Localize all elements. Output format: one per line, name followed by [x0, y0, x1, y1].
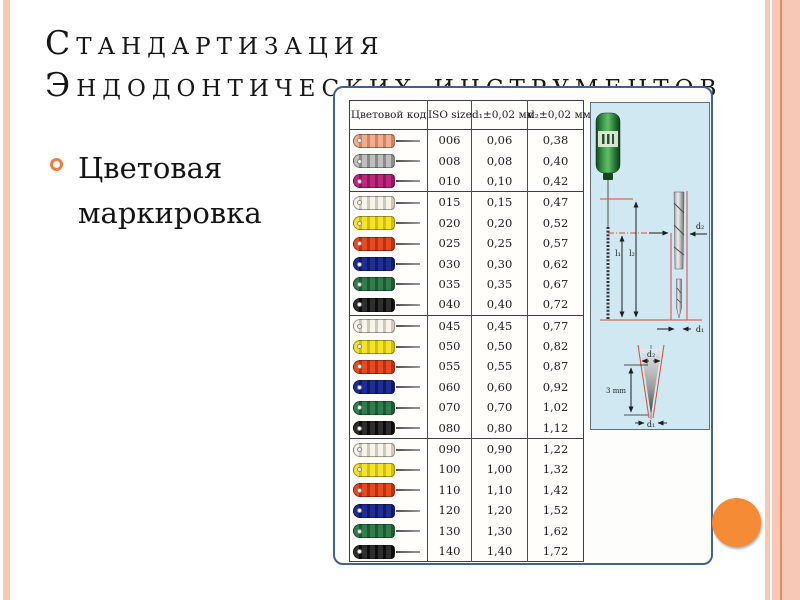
- d1-cell: 1,10: [472, 480, 528, 500]
- right-edge-stripe-thin: [765, 0, 770, 600]
- d1-cell: 0,70: [472, 397, 528, 417]
- file-handle-icon: [353, 216, 395, 230]
- iso-size-cell: 050: [428, 336, 472, 356]
- handle-eye-icon: [357, 344, 362, 349]
- color-code-cell: [350, 397, 428, 417]
- color-code-cell: [350, 336, 428, 356]
- file-shaft-icon: [396, 202, 420, 204]
- file-shaft-icon: [396, 140, 420, 142]
- table-row: 0150,150,47: [350, 192, 584, 213]
- file-handle-icon: [353, 319, 395, 333]
- d1-cell: 1,00: [472, 459, 528, 479]
- handle-eye-icon: [357, 447, 362, 452]
- file-shaft-icon: [396, 346, 420, 348]
- d2-cell: 1,12: [528, 417, 584, 438]
- table-row: 1101,101,42: [350, 480, 584, 500]
- handle-eye-icon: [357, 282, 362, 287]
- file-shaft-icon: [396, 366, 420, 368]
- cone-3mm-label: 3 mm: [606, 387, 626, 395]
- iso-size-cell: 110: [428, 480, 472, 500]
- iso-table: Цветовой код ISO size d₁±0,02 мм d₂±0,02…: [349, 100, 584, 562]
- magnified-file-blade: [674, 192, 684, 269]
- iso-size-cell: 080: [428, 417, 472, 438]
- handle-eye-icon: [357, 364, 362, 369]
- color-code-cell: [350, 294, 428, 315]
- file-handle-icon: [353, 134, 395, 148]
- d2-cell: 1,62: [528, 520, 584, 540]
- table-group: 0150,150,470200,200,520250,250,570300,30…: [350, 192, 584, 315]
- iso-size-cell: 090: [428, 438, 472, 459]
- title-line-1: Стандартизация: [45, 22, 722, 64]
- d2-cell: 1,32: [528, 459, 584, 479]
- file-handle-icon: [353, 237, 395, 251]
- table-row: 0450,450,77: [350, 315, 584, 336]
- d1-cell: 0,55: [472, 356, 528, 376]
- iso-size-cell: 070: [428, 397, 472, 417]
- file-handle-icon: [353, 545, 395, 559]
- list-bullet-icon: [50, 158, 63, 171]
- color-code-cell: [350, 500, 428, 520]
- file-handle-icon: [353, 483, 395, 497]
- file-handle-icon: [353, 380, 395, 394]
- d1-cell: 0,30: [472, 253, 528, 273]
- d1-cell: 0,35: [472, 274, 528, 294]
- d2-label: d₂: [696, 222, 704, 231]
- d2-cell: 0,82: [528, 336, 584, 356]
- file-shaft-icon: [396, 180, 420, 182]
- handle-eye-icon: [357, 241, 362, 246]
- header-iso-size: ISO size: [428, 101, 472, 130]
- d2-cell: 0,72: [528, 294, 584, 315]
- d1-label: d₁: [696, 325, 704, 334]
- right-edge-stripe-band: [772, 0, 800, 600]
- bullet-label: Цветовая маркировка: [78, 146, 313, 236]
- instrument-diagram: l₁ l₂ d₂ d₁: [591, 103, 709, 429]
- file-shaft-icon: [396, 530, 420, 532]
- iso-table-header: Цветовой код ISO size d₁±0,02 мм d₂±0,02…: [350, 101, 584, 130]
- file-shaft-icon: [396, 304, 420, 306]
- d2-cell: 1,42: [528, 480, 584, 500]
- table-row: 0400,400,72: [350, 294, 584, 315]
- d2-cell: 1,72: [528, 541, 584, 562]
- handle-eye-icon: [357, 179, 362, 184]
- table-row: 0500,500,82: [350, 336, 584, 356]
- d1-cell: 1,20: [472, 500, 528, 520]
- d2-cell: 0,67: [528, 274, 584, 294]
- iso-size-cell: 010: [428, 171, 472, 192]
- d1-cell: 0,06: [472, 130, 528, 151]
- color-code-cell: [350, 253, 428, 273]
- table-row: 0700,701,02: [350, 397, 584, 417]
- table-row: 0550,550,87: [350, 356, 584, 376]
- color-code-cell: [350, 417, 428, 438]
- handle-eye-icon: [357, 324, 362, 329]
- table-group: 0900,901,221001,001,321101,101,421201,20…: [350, 438, 584, 561]
- file-shaft-icon: [396, 160, 420, 162]
- file-handle-icon: [353, 421, 395, 435]
- file-shaft-icon: [396, 263, 420, 265]
- table-row: 0080,080,40: [350, 150, 584, 170]
- file-handle-icon: [353, 524, 395, 538]
- left-edge-stripe: [3, 0, 10, 600]
- green-handle-icon: [596, 113, 620, 180]
- iso-size-cell: 045: [428, 315, 472, 336]
- color-code-cell: [350, 541, 428, 562]
- file-shaft-icon: [396, 427, 420, 429]
- d1-cell: 0,40: [472, 294, 528, 315]
- file-handle-icon: [353, 463, 395, 477]
- d2-cell: 0,40: [528, 150, 584, 170]
- iso-size-cell: 055: [428, 356, 472, 376]
- header-color-code: Цветовой код: [350, 101, 428, 130]
- d2-cell: 1,52: [528, 500, 584, 520]
- color-code-cell: [350, 130, 428, 151]
- file-shaft-icon: [396, 283, 420, 285]
- handle-eye-icon: [357, 302, 362, 307]
- cone-d1-label: d₁: [647, 420, 655, 429]
- color-code-cell: [350, 520, 428, 540]
- file-shaft-icon: [396, 243, 420, 245]
- iso-size-cell: 030: [428, 253, 472, 273]
- right-edge-stripe-line: [780, 0, 782, 600]
- file-shaft-icon: [396, 469, 420, 471]
- file-handle-icon: [353, 298, 395, 312]
- file-handle-icon: [353, 196, 395, 210]
- file-shaft-icon: [396, 449, 420, 451]
- file-handle-icon: [353, 257, 395, 271]
- color-code-cell: [350, 171, 428, 192]
- iso-size-cell: 130: [428, 520, 472, 540]
- dimension-diagram-box: l₁ l₂ d₂ d₁: [590, 102, 710, 430]
- color-code-cell: [350, 192, 428, 213]
- file-handle-icon: [353, 277, 395, 291]
- color-code-cell: [350, 315, 428, 336]
- table-row: 0060,060,38: [350, 130, 584, 151]
- d1-cell: 0,80: [472, 417, 528, 438]
- iso-size-cell: 120: [428, 500, 472, 520]
- file-handle-icon: [353, 401, 395, 415]
- table-row: 0900,901,22: [350, 438, 584, 459]
- d1-cell: 0,20: [472, 213, 528, 233]
- iso-size-cell: 015: [428, 192, 472, 213]
- table-row: 1201,201,52: [350, 500, 584, 520]
- file-shaft-icon: [396, 222, 420, 224]
- iso-size-cell: 006: [428, 130, 472, 151]
- file-shaft-icon: [396, 407, 420, 409]
- iso-size-cell: 040: [428, 294, 472, 315]
- iso-size-cell: 020: [428, 213, 472, 233]
- l2-label: l₂: [629, 249, 635, 258]
- d1-cell: 0,60: [472, 377, 528, 397]
- table-row: 0350,350,67: [350, 274, 584, 294]
- handle-eye-icon: [357, 262, 362, 267]
- header-d2: d₂±0,02 мм: [528, 101, 584, 130]
- d1-cell: 0,45: [472, 315, 528, 336]
- handle-eye-icon: [357, 385, 362, 390]
- figure-panel: Цветовой код ISO size d₁±0,02 мм d₂±0,02…: [333, 86, 713, 565]
- d2-cell: 0,62: [528, 253, 584, 273]
- l1-label: l₁: [615, 249, 621, 258]
- d2-cell: 1,02: [528, 397, 584, 417]
- file-shaft-icon: [396, 325, 420, 327]
- table-row: 0800,801,12: [350, 417, 584, 438]
- d2-cell: 0,52: [528, 213, 584, 233]
- table-group: 0450,450,770500,500,820550,550,870600,60…: [350, 315, 584, 438]
- file-shaft-icon: [396, 489, 420, 491]
- iso-size-cell: 035: [428, 274, 472, 294]
- table-row: 1301,301,62: [350, 520, 584, 540]
- d2-cell: 0,87: [528, 356, 584, 376]
- color-code-cell: [350, 459, 428, 479]
- table-group: 0060,060,380080,080,400100,100,42: [350, 130, 584, 192]
- handle-eye-icon: [357, 138, 362, 143]
- color-code-cell: [350, 356, 428, 376]
- iso-size-cell: 008: [428, 150, 472, 170]
- d1-cell: 0,90: [472, 438, 528, 459]
- d1-cell: 0,25: [472, 233, 528, 253]
- file-shaft-icon: [396, 551, 420, 553]
- d1-cell: 1,40: [472, 541, 528, 562]
- d2-cell: 1,22: [528, 438, 584, 459]
- color-code-cell: [350, 274, 428, 294]
- table-row: 0250,250,57: [350, 233, 584, 253]
- handle-eye-icon: [357, 426, 362, 431]
- handle-eye-icon: [357, 221, 362, 226]
- table-row: 1001,001,32: [350, 459, 584, 479]
- decorative-circle: [712, 498, 761, 547]
- file-handle-icon: [353, 154, 395, 168]
- d2-cell: 0,38: [528, 130, 584, 151]
- table-row: 0200,200,52: [350, 213, 584, 233]
- d1-cell: 0,10: [472, 171, 528, 192]
- file-shaft-icon: [396, 386, 420, 388]
- color-code-cell: [350, 480, 428, 500]
- d2-cell: 0,77: [528, 315, 584, 336]
- iso-size-cell: 140: [428, 541, 472, 562]
- color-code-cell: [350, 438, 428, 459]
- table-row: 1401,401,72: [350, 541, 584, 562]
- color-code-cell: [350, 150, 428, 170]
- header-d1: d₁±0,02 мм: [472, 101, 528, 130]
- d2-cell: 0,57: [528, 233, 584, 253]
- file-shaft-icon: [396, 510, 420, 512]
- handle-eye-icon: [357, 529, 362, 534]
- file-handle-icon: [353, 174, 395, 188]
- d2-cell: 0,42: [528, 171, 584, 192]
- file-handle-icon: [353, 360, 395, 374]
- color-code-cell: [350, 377, 428, 397]
- d2-cell: 0,47: [528, 192, 584, 213]
- d1-cell: 0,15: [472, 192, 528, 213]
- table-row: 0300,300,62: [350, 253, 584, 273]
- d1-cell: 1,30: [472, 520, 528, 540]
- cone-d2-label: d₂: [647, 350, 655, 359]
- handle-eye-icon: [357, 405, 362, 410]
- iso-size-cell: 100: [428, 459, 472, 479]
- handle-eye-icon: [357, 200, 362, 205]
- handle-eye-icon: [357, 467, 362, 472]
- color-code-cell: [350, 233, 428, 253]
- handle-eye-icon: [357, 508, 362, 513]
- d2-cell: 0,92: [528, 377, 584, 397]
- handle-eye-icon: [357, 488, 362, 493]
- bullet-item: Цветовая маркировка: [50, 146, 313, 236]
- color-code-cell: [350, 213, 428, 233]
- table-row: 0600,600,92: [350, 377, 584, 397]
- d1-cell: 0,50: [472, 336, 528, 356]
- file-handle-icon: [353, 340, 395, 354]
- iso-size-cell: 025: [428, 233, 472, 253]
- handle-eye-icon: [357, 549, 362, 554]
- d1-cell: 0,08: [472, 150, 528, 170]
- iso-size-cell: 060: [428, 377, 472, 397]
- handle-eye-icon: [357, 159, 362, 164]
- file-handle-icon: [353, 443, 395, 457]
- file-handle-icon: [353, 504, 395, 518]
- table-row: 0100,100,42: [350, 171, 584, 192]
